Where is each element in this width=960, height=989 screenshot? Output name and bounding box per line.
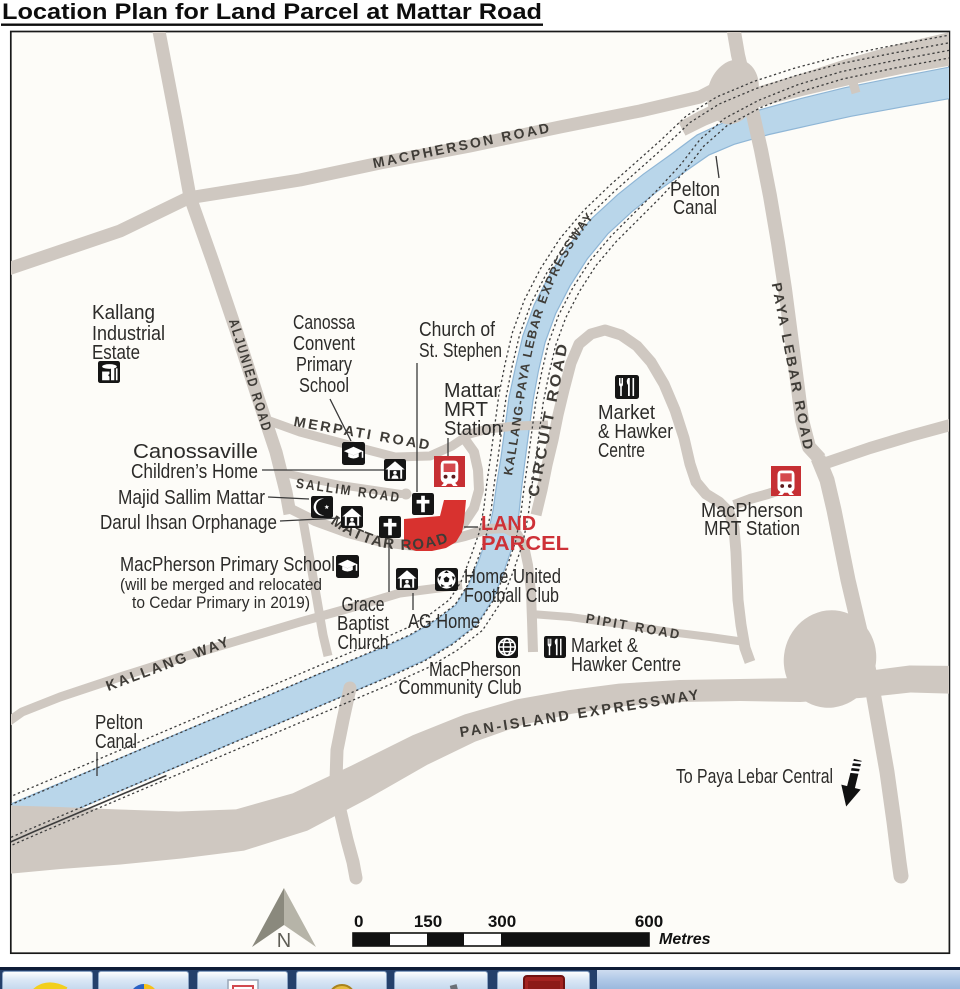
svg-text:St. Stephen: St. Stephen xyxy=(419,340,502,362)
svg-text:School: School xyxy=(299,375,349,397)
svg-text:Estate: Estate xyxy=(92,342,140,364)
svg-text:Canal: Canal xyxy=(95,731,137,753)
svg-text:Hawker Centre: Hawker Centre xyxy=(571,654,681,676)
svg-text:Kallang: Kallang xyxy=(92,302,155,324)
svg-text:Metres: Metres xyxy=(659,931,711,948)
svg-text:Station: Station xyxy=(444,418,502,440)
svg-text:PARCEL: PARCEL xyxy=(481,533,569,555)
svg-text:Children’s Home: Children’s Home xyxy=(131,461,258,483)
svg-text:Canal: Canal xyxy=(673,197,717,219)
svg-text:MacPherson Primary School: MacPherson Primary School xyxy=(120,554,335,576)
svg-text:To Paya Lebar Central: To Paya Lebar Central xyxy=(676,766,833,788)
svg-text:AG Home: AG Home xyxy=(408,611,480,633)
svg-text:Community Club: Community Club xyxy=(399,677,522,699)
svg-text:600: 600 xyxy=(635,912,663,931)
svg-text:N: N xyxy=(277,930,291,952)
svg-text:Location Plan for Land Parcel: Location Plan for Land Parcel at Mattar … xyxy=(2,0,542,24)
svg-text:Darul Ihsan Orphanage: Darul Ihsan Orphanage xyxy=(100,512,277,534)
svg-text:Football Club: Football Club xyxy=(464,585,559,607)
svg-text:(will be merged and relocated: (will be merged and relocated xyxy=(120,576,322,594)
svg-text:Majid Sallim Mattar: Majid Sallim Mattar xyxy=(118,487,265,509)
svg-text:Centre: Centre xyxy=(598,440,645,462)
svg-text:300: 300 xyxy=(488,912,516,931)
svg-text:150: 150 xyxy=(414,912,442,931)
svg-text:Convent: Convent xyxy=(293,333,355,355)
svg-text:to Cedar Primary in 2019): to Cedar Primary in 2019) xyxy=(132,594,310,612)
svg-text:Primary: Primary xyxy=(296,354,352,376)
svg-text:Canossaville: Canossaville xyxy=(133,441,258,463)
svg-text:Church: Church xyxy=(338,632,389,654)
svg-text:LAND: LAND xyxy=(481,513,536,535)
svg-text:Canossa: Canossa xyxy=(293,312,356,334)
svg-text:Church of: Church of xyxy=(419,319,495,341)
svg-text:0: 0 xyxy=(354,912,363,931)
svg-text:MRT Station: MRT Station xyxy=(704,518,800,540)
